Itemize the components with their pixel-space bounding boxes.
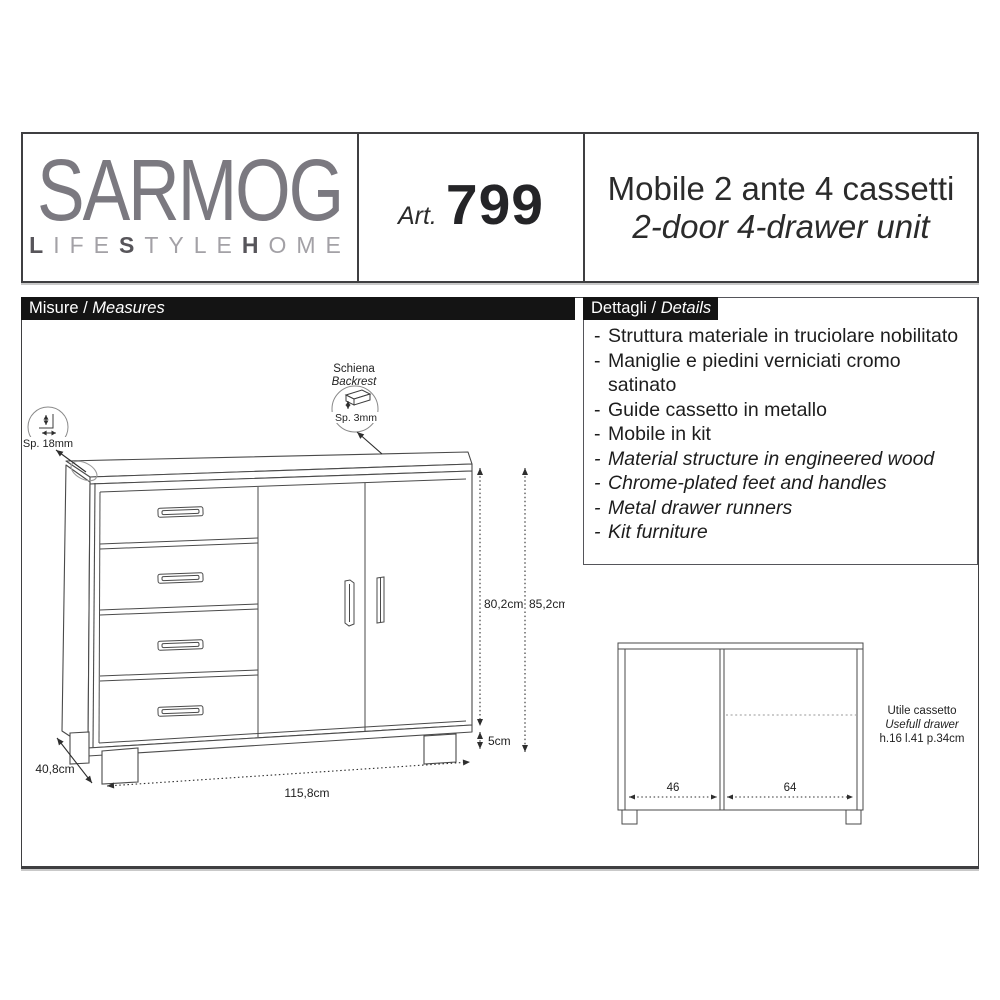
detail-item: -Struttura materiale in truciolare nobil… xyxy=(593,324,969,349)
measures-section-header: Misure / Measures xyxy=(21,297,575,320)
interior-dimensions-drawing: 46 64 Utile cassetto Usefull drawer h.16… xyxy=(605,635,985,835)
details-box: -Struttura materiale in truciolare nobil… xyxy=(583,297,978,565)
backrest-callout: Schiena Backrest Sp. 3mm xyxy=(330,363,382,454)
dim-depth-label: 40,8cm xyxy=(35,762,74,776)
drawer-note-en: Usefull drawer xyxy=(885,719,960,731)
dim-total-height-label: 85,2cm xyxy=(529,597,565,611)
dim-feet-height-label: 5cm xyxy=(488,734,511,748)
dim-body-height-label: 80,2cm xyxy=(484,597,523,611)
foot-front-left xyxy=(102,748,138,784)
cabinet-front xyxy=(88,471,472,748)
details-label-en: Details xyxy=(661,299,711,317)
spec-sheet-page: SARMOG LIFESTYLEHOME Art. 799 Mobile 2 a… xyxy=(0,0,1000,1000)
backrest-thickness-label: Sp. 3mm xyxy=(335,412,377,424)
interior-foot-left xyxy=(622,810,637,824)
product-title: Mobile 2 ante 4 cassetti 2-door 4-drawer… xyxy=(583,134,977,281)
foot-right xyxy=(424,734,456,764)
product-title-it: Mobile 2 ante 4 cassetti xyxy=(608,170,955,208)
brand-name: SARMOG xyxy=(37,148,342,231)
product-title-en: 2-door 4-drawer unit xyxy=(632,208,929,246)
backrest-callout-leader xyxy=(357,432,382,454)
drawer-handle xyxy=(158,706,203,717)
dim-width-label: 115,8cm xyxy=(284,786,329,800)
backrest-label-it: Schiena xyxy=(333,363,375,375)
drawer-handle xyxy=(158,640,203,651)
cabinet-side-panel xyxy=(62,465,90,748)
brand-logo: SARMOG LIFESTYLEHOME xyxy=(23,134,357,281)
details-label-it: Dettagli xyxy=(591,299,647,317)
header: SARMOG LIFESTYLEHOME Art. 799 Mobile 2 a… xyxy=(21,132,979,283)
drawer-handle xyxy=(158,507,203,518)
detail-item: -Metal drawer runners xyxy=(593,496,969,521)
drawer-note-it: Utile cassetto xyxy=(887,705,956,717)
article-prefix: Art. xyxy=(398,202,437,231)
dim-line-width xyxy=(107,762,470,786)
cabinet-body xyxy=(62,452,472,756)
measures-label-en: Measures xyxy=(92,299,164,317)
detail-item: -Material structure in engineered wood xyxy=(593,447,969,472)
details-section-header: Dettagli / Details xyxy=(583,297,718,320)
side-thickness-label: Sp. 18mm xyxy=(23,438,73,450)
measures-label-it: Misure xyxy=(29,299,79,317)
detail-item: -Mobile in kit xyxy=(593,422,969,447)
door-handle-left xyxy=(345,580,354,626)
left-compartment-width: 46 xyxy=(667,782,680,794)
door-handle-right xyxy=(377,577,384,623)
detail-item: -Chrome-plated feet and handles xyxy=(593,471,969,496)
right-compartment-width: 64 xyxy=(784,782,797,794)
article-cell: Art. 799 xyxy=(357,134,583,281)
article-number: 799 xyxy=(446,172,544,238)
details-list: -Struttura materiale in truciolare nobil… xyxy=(593,324,969,545)
drawer-handle xyxy=(158,573,203,584)
drawer-note-size: h.16 l.41 p.34cm xyxy=(879,733,964,745)
detail-item: -Guide cassetto in metallo xyxy=(593,398,969,423)
interior-foot-right xyxy=(846,810,861,824)
cabinet-technical-drawing: 80,2cm 85,2cm 5cm 115,8cm 40,8cm Sp. 18m… xyxy=(20,345,565,820)
detail-item: -Maniglie e piedini verniciati cromo sat… xyxy=(593,349,969,398)
detail-item: -Kit furniture xyxy=(593,520,969,545)
interior-labels: 46 64 Utile cassetto Usefull drawer h.16… xyxy=(667,705,965,794)
